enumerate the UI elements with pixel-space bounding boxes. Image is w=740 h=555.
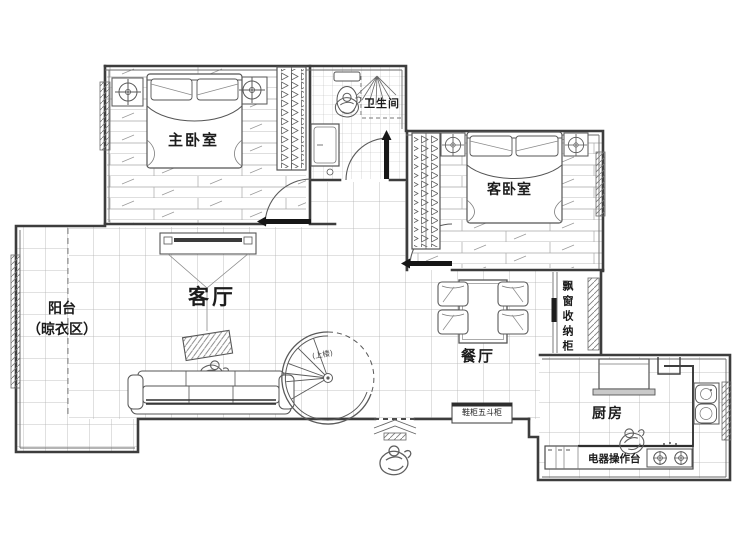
- guest-wardrobe: [412, 133, 440, 249]
- dining-room-furniture: [438, 280, 528, 343]
- dining-chair: [438, 310, 468, 334]
- bay-window-cabinet-label: 飘窗收纳柜: [559, 280, 575, 358]
- balcony-label: 阳台 （晾衣区）: [10, 299, 114, 341]
- master-wardrobe: [277, 67, 306, 170]
- master-bedroom-label: 主卧室: [168, 129, 219, 150]
- entry-canopy: [374, 420, 416, 434]
- floor-plan-drawing: [0, 0, 740, 555]
- guest-bedroom-label: 客卧室: [487, 179, 532, 199]
- balcony-label-line1: 阳台: [10, 299, 114, 320]
- bay-window-seat: [588, 278, 599, 350]
- master-west-window: [100, 82, 110, 150]
- dining-chair: [438, 282, 468, 306]
- bay-wall-stud: [552, 298, 557, 322]
- bathroom-label: 卫生间: [364, 95, 400, 111]
- appliance-counter-label: 电器操作台: [588, 451, 641, 466]
- kitchen-sink: [694, 383, 719, 424]
- dining-chair: [498, 310, 528, 334]
- range-hood: [593, 389, 655, 395]
- apartment-floor-plan: 主卧室 卫生间 客卧室 阳台 （晾衣区） 客厅 餐厅 厨房 电器操作台 鞋柜五斗…: [0, 0, 740, 555]
- balcony-label-line2: （晾衣区）: [10, 320, 114, 341]
- person-figure-entry: [380, 446, 411, 475]
- dining-chair: [498, 282, 528, 306]
- guest-bed: [467, 132, 562, 223]
- shoe-cabinet-label: 鞋柜五斗柜: [452, 407, 512, 418]
- master-bed: [147, 74, 242, 168]
- kitchen-tall-cabinet: [599, 359, 649, 389]
- living-room-label: 客厅: [188, 281, 236, 311]
- kitchen-east-window: [722, 382, 731, 440]
- kitchen-label: 厨房: [592, 403, 624, 423]
- sofa: [128, 371, 294, 414]
- entry-mat: [384, 433, 406, 440]
- guest-east-window: [596, 152, 605, 216]
- dining-room-label: 餐厅: [461, 345, 495, 366]
